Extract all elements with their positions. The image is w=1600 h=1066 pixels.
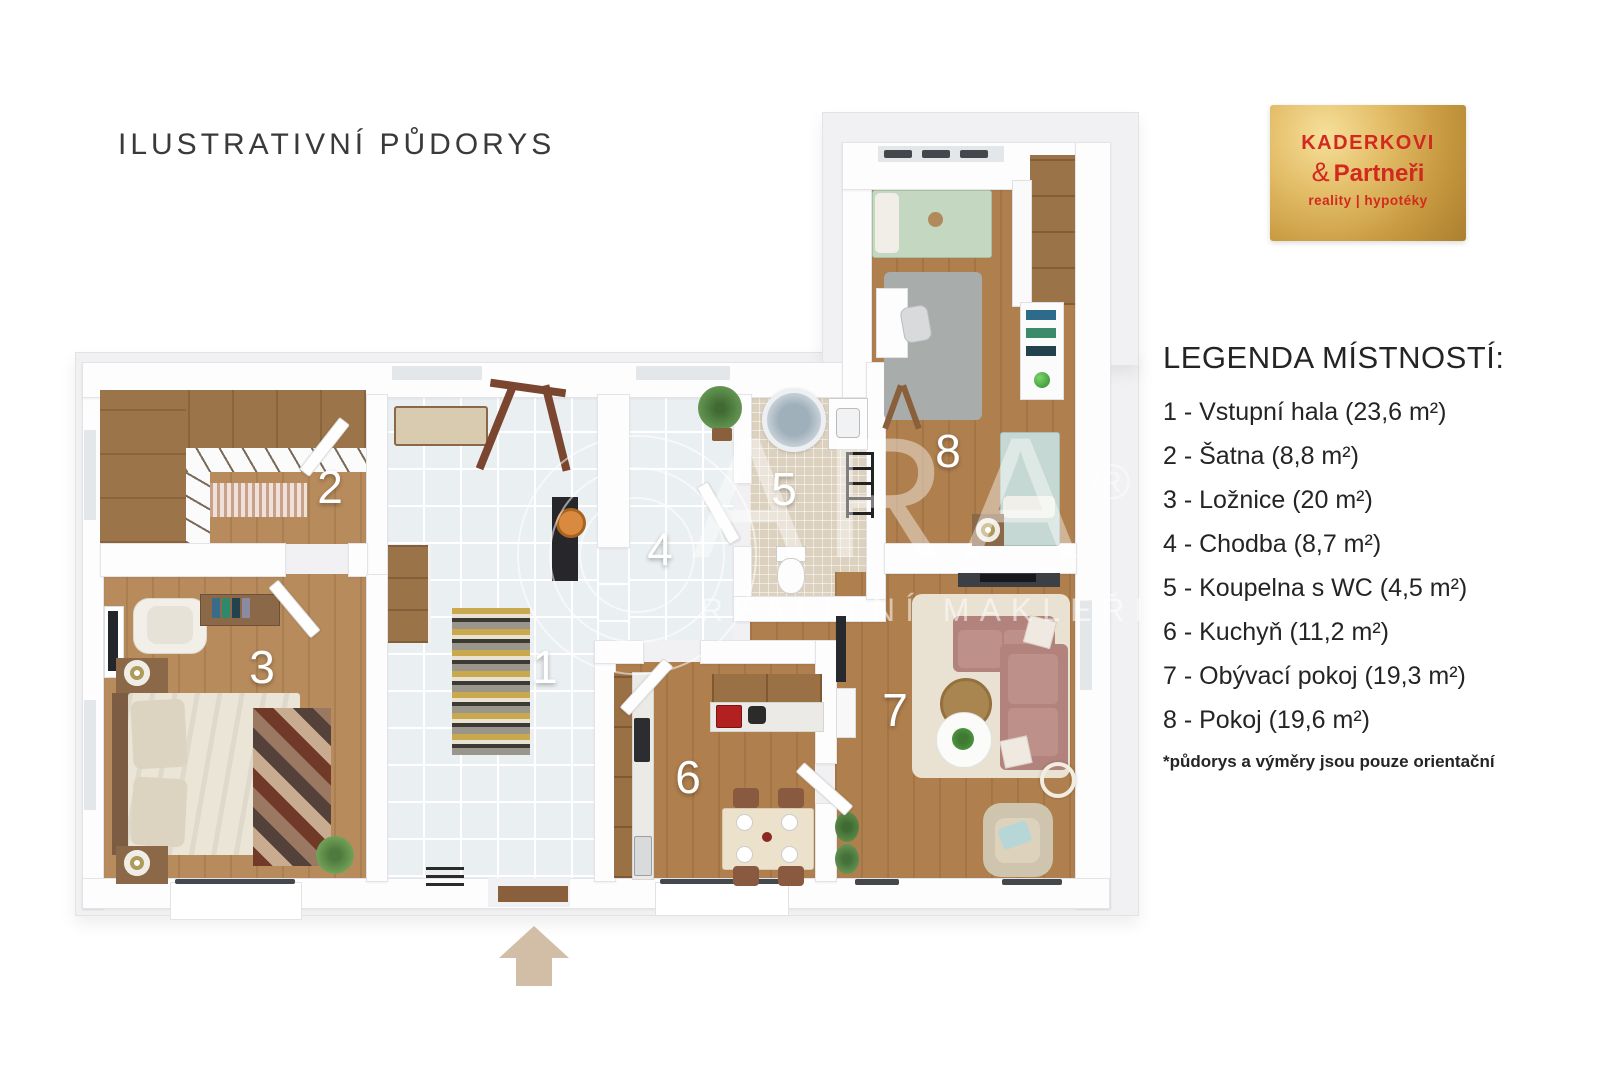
legend-items: 1 - Vstupní hala (23,6 m²) 2 - Šatna (8,…: [1163, 390, 1504, 742]
legend-item-1: 1 - Vstupní hala (23,6 m²): [1163, 390, 1504, 434]
toy-ball: [1034, 372, 1050, 388]
bowl: [762, 832, 772, 842]
entrance-arrow-icon: [499, 926, 569, 958]
chair: [733, 788, 759, 808]
window: [1002, 879, 1062, 885]
books: [1026, 328, 1056, 338]
books: [222, 598, 230, 618]
pillow: [130, 777, 187, 848]
ampersand-cat-icon: &: [1312, 157, 1330, 187]
legend-item-6: 6 - Kuchyň (11,2 m²): [1163, 610, 1504, 654]
rug: [210, 483, 307, 517]
legend-item-3: 3 - Ložnice (20 m²): [1163, 478, 1504, 522]
desk-chair: [899, 304, 933, 344]
window: [660, 879, 782, 884]
legend-item-4: 4 - Chodba (8,7 m²): [1163, 522, 1504, 566]
double-bed: [112, 693, 128, 855]
window: [392, 366, 482, 380]
legend-item-5: 5 - Koupelna s WC (4,5 m²): [1163, 566, 1504, 610]
legend-heading: LEGENDA MÍSTNOSTÍ:: [1163, 340, 1504, 376]
kitchen-cabinets: [712, 674, 822, 702]
wall-segment: [597, 394, 630, 548]
doormat: [426, 864, 464, 886]
tv-screen: [836, 616, 846, 682]
window: [884, 150, 912, 158]
room-legend: LEGENDA MÍSTNOSTÍ: 1 - Vstupní hala (23,…: [1163, 340, 1504, 772]
lamp: [976, 518, 1000, 542]
wall-segment: [815, 803, 837, 882]
lamp: [124, 660, 150, 686]
wall-segment: [366, 574, 388, 882]
window: [960, 150, 988, 158]
floor-plan-page: ILUSTRATIVNÍ PŮDORYS KADERKOVI &Partneři…: [0, 0, 1600, 1066]
wall-segment: [348, 543, 368, 577]
room-label-3: 3: [234, 640, 290, 694]
bench: [394, 406, 488, 446]
wall-segment: [733, 546, 752, 602]
wall-segment: [733, 596, 886, 622]
single-bed: [1000, 432, 1060, 546]
plant: [835, 812, 859, 842]
plant: [835, 844, 859, 874]
sink: [836, 408, 860, 438]
window: [855, 879, 899, 885]
bathtub: [762, 388, 826, 452]
chair: [778, 866, 804, 886]
kitchen-sink: [634, 836, 652, 876]
page-title: ILUSTRATIVNÍ PŮDORYS: [118, 128, 555, 162]
window: [655, 882, 789, 916]
wardrobe: [100, 390, 186, 543]
kettle: [748, 706, 766, 724]
legend-item-2: 2 - Šatna (8,8 m²): [1163, 434, 1504, 478]
books: [232, 598, 240, 618]
mirror: [556, 508, 586, 538]
plate: [736, 814, 753, 831]
tv-screen: [980, 574, 1036, 582]
logo-partners-line: &Partneři: [1270, 157, 1466, 188]
wardrobe-hanger-rail: [186, 472, 210, 543]
chair: [778, 788, 804, 808]
toilet: [777, 558, 805, 594]
coffee-machine: [716, 705, 742, 728]
window: [84, 700, 96, 810]
legend-item-7: 7 - Obývací pokoj (19,3 m²): [1163, 654, 1504, 698]
logo-partners: Partneři: [1334, 160, 1425, 187]
plant: [698, 386, 742, 430]
entrance-threshold: [498, 886, 568, 902]
chair: [733, 866, 759, 886]
towel-ladder: [846, 452, 874, 518]
wardrobe: [1012, 180, 1032, 307]
brand-logo: KADERKOVI &Partneři reality | hypotéky: [1270, 105, 1466, 241]
plant: [952, 728, 974, 750]
wall-segment: [100, 543, 286, 577]
books: [242, 598, 250, 618]
window: [170, 882, 302, 920]
sofa: [958, 630, 1002, 668]
legend-footnote: *půdorys a výměry jsou pouze orientační: [1163, 752, 1504, 772]
wall-segment: [884, 543, 1077, 574]
room-label-4: 4: [632, 522, 688, 576]
plate: [781, 846, 798, 863]
logo-tagline: reality | hypotéky: [1270, 193, 1466, 208]
plate: [736, 846, 753, 863]
plant: [316, 836, 354, 874]
wall-segment: [366, 394, 388, 578]
cooktop: [634, 718, 650, 762]
logo-name: KADERKOVI: [1270, 132, 1466, 155]
pillow: [875, 193, 899, 253]
window: [1080, 600, 1092, 690]
window: [175, 879, 295, 884]
wall-segment: [594, 640, 644, 664]
window: [922, 150, 950, 158]
plate: [781, 814, 798, 831]
room-label-5: 5: [756, 462, 812, 516]
hall-corridor-passage-floor: [597, 546, 628, 640]
wall-segment: [1075, 142, 1111, 909]
legend-item-8: 8 - Pokoj (19,6 m²): [1163, 698, 1504, 742]
room-label-6: 6: [660, 750, 716, 804]
sideboard: [836, 688, 856, 738]
dresser: [388, 545, 431, 643]
room-label-2: 2: [302, 460, 358, 514]
lamp: [124, 850, 150, 876]
plant-pot: [712, 428, 732, 441]
window: [636, 366, 730, 380]
room-label-8: 8: [920, 424, 976, 478]
armchair: [147, 606, 193, 644]
pillow: [999, 735, 1032, 768]
window: [84, 430, 96, 520]
teddy-bear: [928, 212, 943, 227]
sofa: [1008, 654, 1058, 704]
books: [212, 598, 220, 618]
room-label-7: 7: [867, 683, 923, 737]
room-label-1: 1: [517, 640, 573, 694]
wall-segment: [594, 640, 616, 882]
entrance-arrow-icon: [516, 958, 552, 986]
pillow: [130, 699, 187, 770]
wardrobe: [1030, 155, 1075, 305]
books: [1026, 310, 1056, 320]
floor-lamp: [1040, 762, 1076, 798]
pillow: [1003, 496, 1055, 518]
books: [1026, 346, 1056, 356]
corridor-living-passage-floor: [750, 620, 835, 640]
